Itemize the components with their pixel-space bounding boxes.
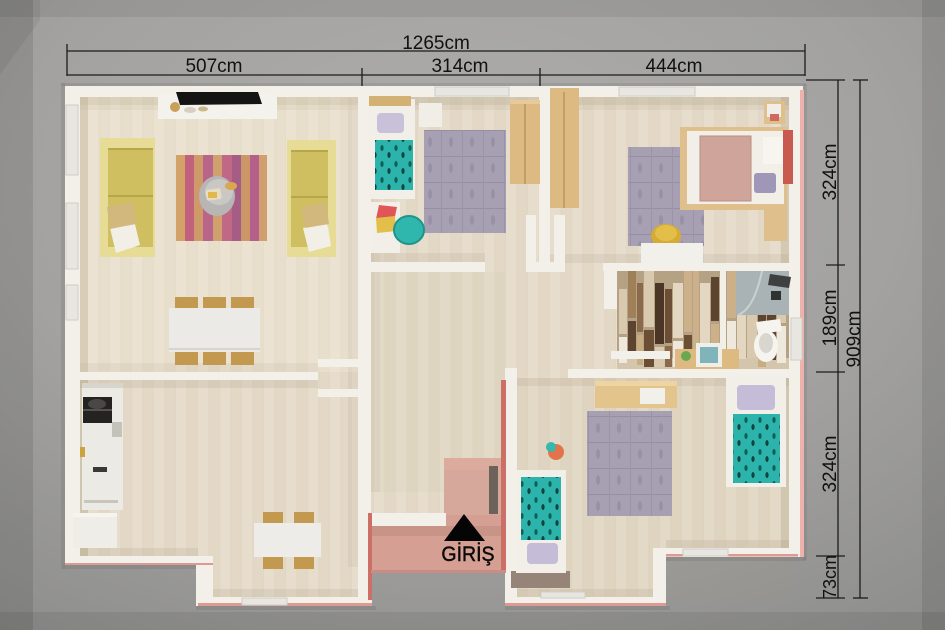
- svg-text:1265cm: 1265cm: [402, 33, 470, 54]
- svg-text:507cm: 507cm: [185, 56, 242, 77]
- svg-text:909cm: 909cm: [844, 310, 865, 367]
- svg-text:324cm: 324cm: [820, 143, 841, 200]
- svg-text:444cm: 444cm: [645, 56, 702, 77]
- svg-text:73cm: 73cm: [820, 555, 840, 599]
- svg-text:GİRİŞ: GİRİŞ: [441, 542, 494, 566]
- svg-text:324cm: 324cm: [820, 435, 841, 492]
- svg-text:314cm: 314cm: [431, 56, 488, 77]
- svg-text:189cm: 189cm: [820, 289, 841, 346]
